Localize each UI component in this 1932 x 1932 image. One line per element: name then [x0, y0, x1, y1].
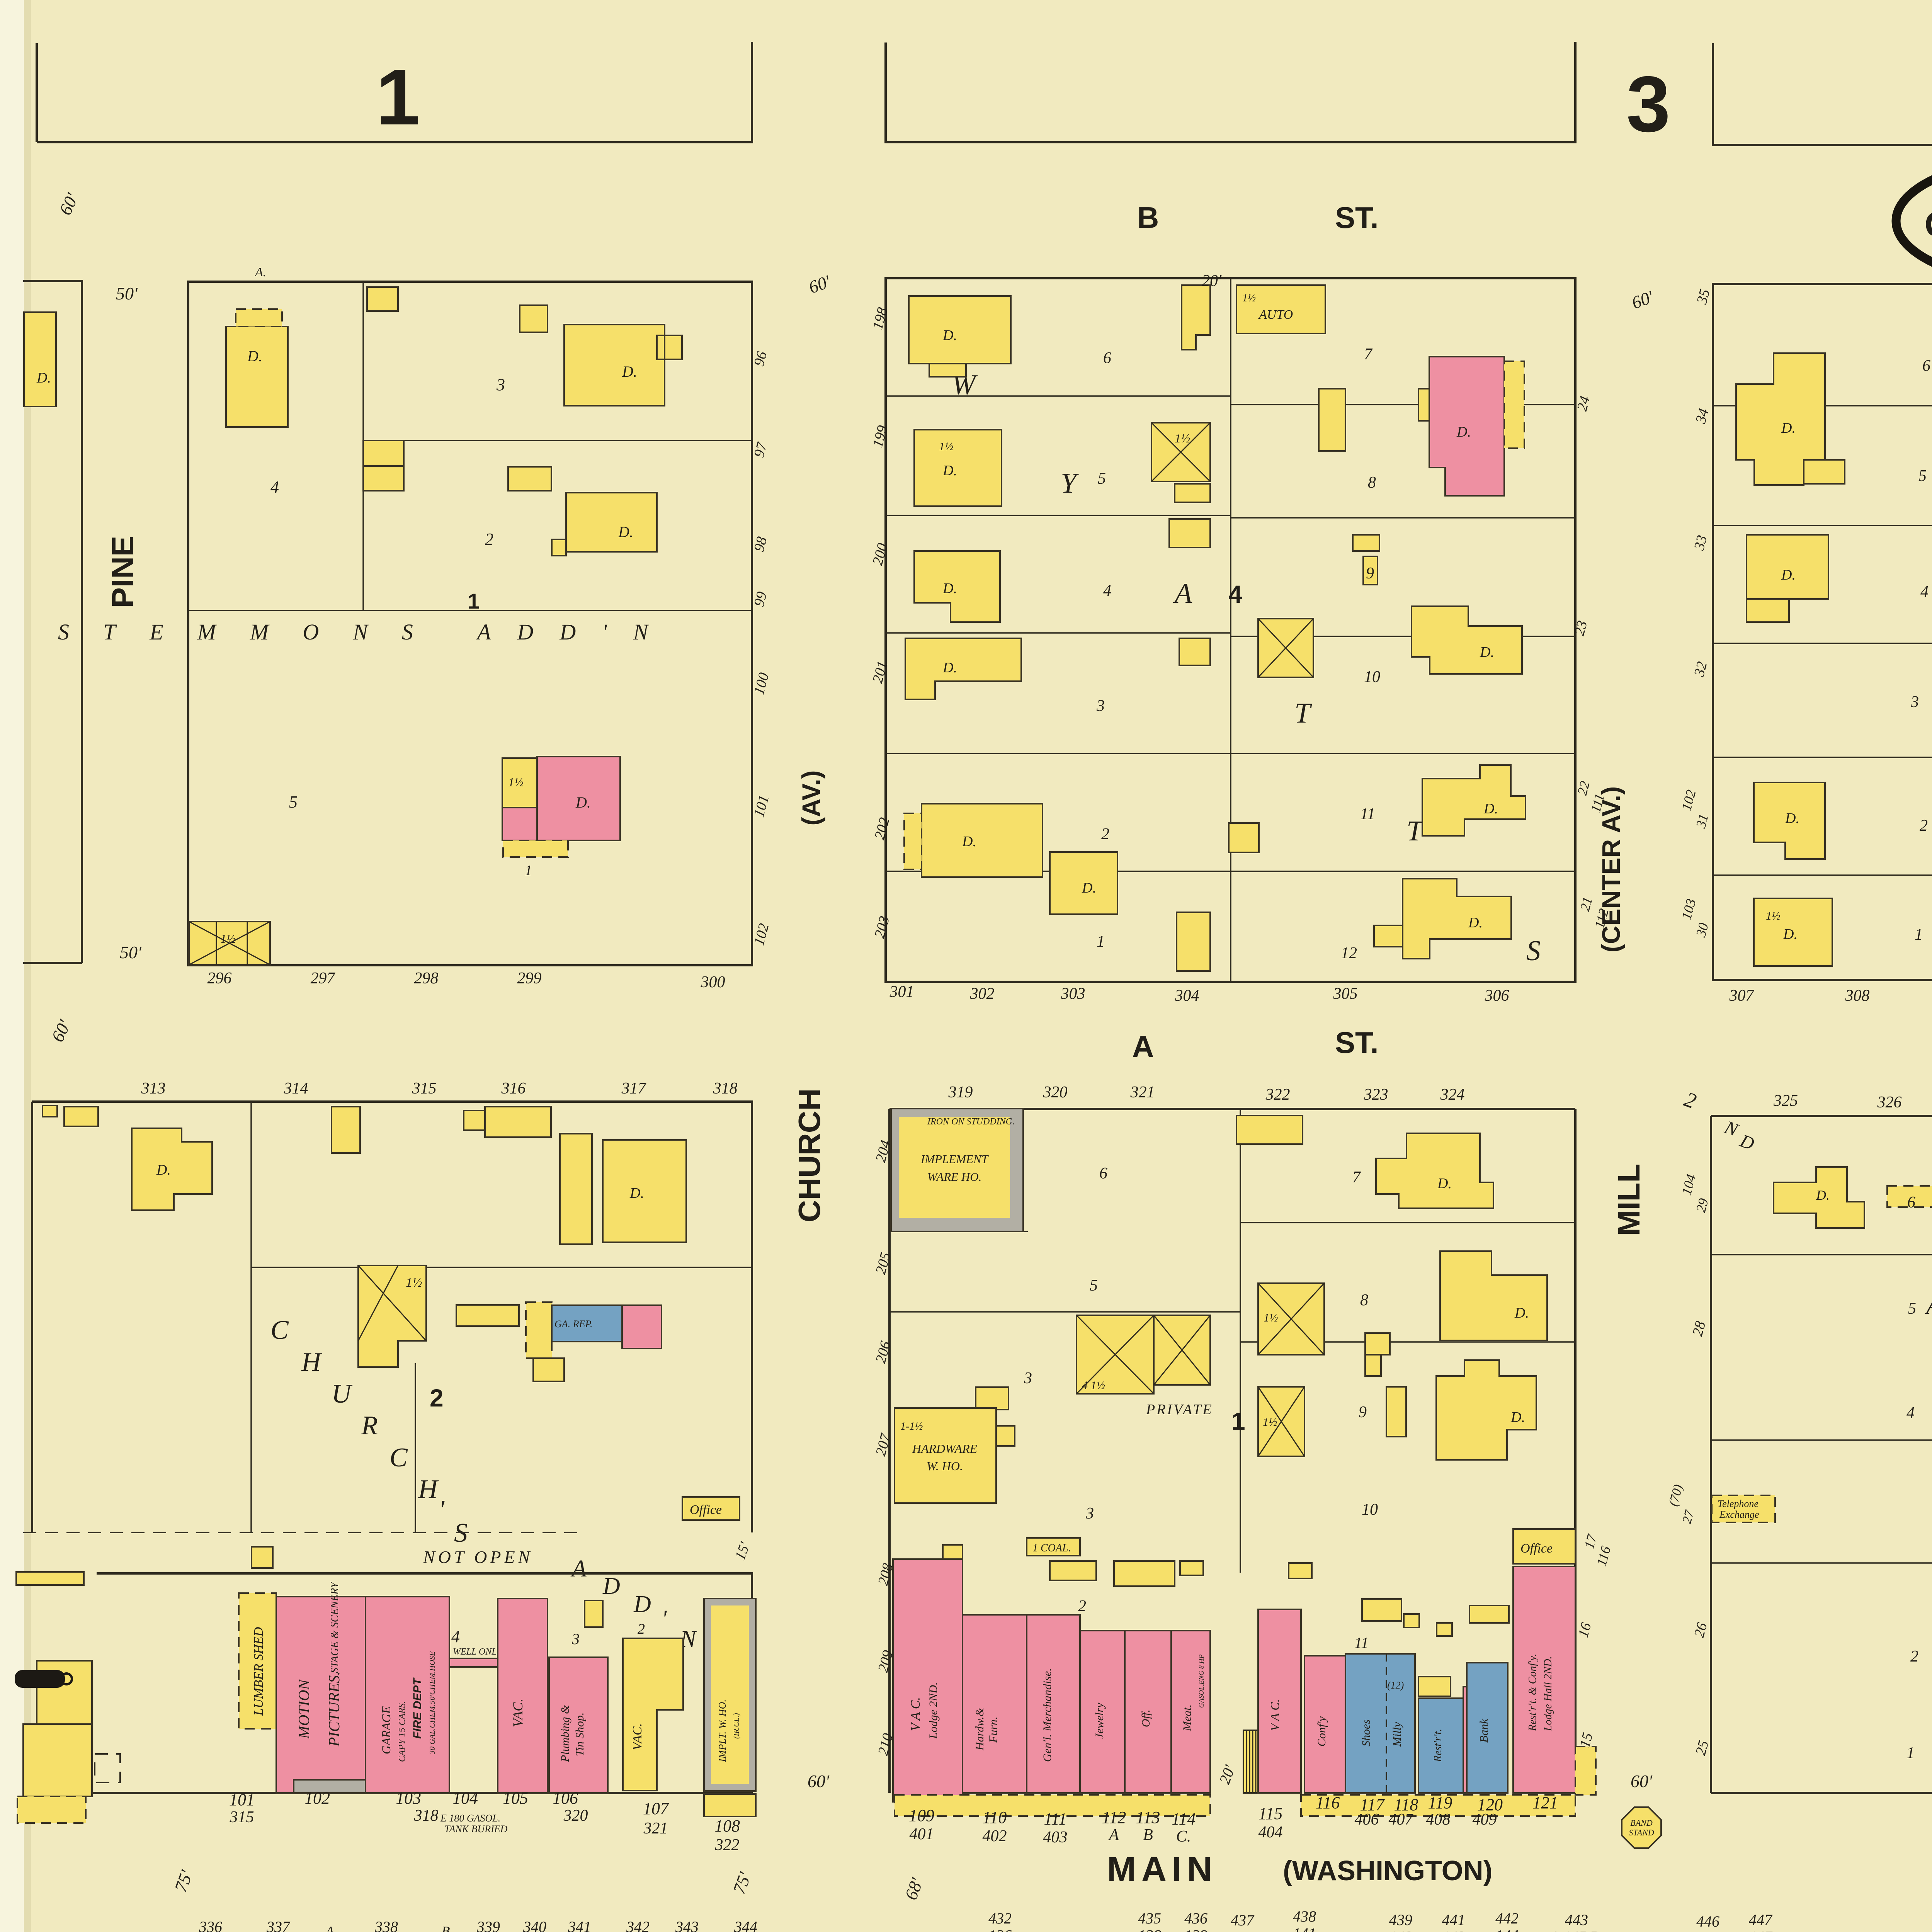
svg-text:FIRE DEPT: FIRE DEPT [411, 1677, 424, 1739]
svg-text:B: B [1137, 201, 1159, 235]
svg-text:1½: 1½ [1264, 1311, 1278, 1324]
svg-text:7: 7 [1352, 1168, 1361, 1186]
svg-text:317: 317 [621, 1080, 647, 1097]
svg-text:Conf'y: Conf'y [1315, 1716, 1328, 1747]
svg-text:5: 5 [1098, 470, 1106, 488]
svg-text:1½: 1½ [1766, 910, 1781, 922]
svg-text:1½: 1½ [1175, 431, 1190, 445]
svg-text:315: 315 [412, 1080, 437, 1097]
svg-text:105: 105 [503, 1789, 528, 1808]
svg-text:2: 2 [1920, 817, 1928, 835]
svg-text:1-1½: 1-1½ [900, 1420, 923, 1432]
svg-text:1½: 1½ [1242, 292, 1256, 304]
svg-text:50': 50' [120, 942, 142, 962]
svg-text:404: 404 [1259, 1823, 1283, 1841]
svg-text:AUTO: AUTO [1258, 308, 1293, 322]
svg-text:4: 4 [1920, 583, 1929, 601]
svg-text:Milly: Milly [1391, 1722, 1403, 1747]
svg-text:A: A [1173, 578, 1192, 609]
svg-text:Furn.: Furn. [987, 1717, 1000, 1743]
svg-text:D.: D. [1456, 424, 1471, 440]
svg-text:117: 117 [1360, 1795, 1385, 1814]
svg-text:Off.: Off. [1139, 1709, 1152, 1727]
svg-text:296: 296 [207, 969, 232, 987]
svg-text:CHURCH: CHURCH [792, 1088, 827, 1223]
svg-text:NOT OPEN: NOT OPEN [423, 1547, 533, 1567]
svg-text:GASOL.ENG 8 HP: GASOL.ENG 8 HP [1197, 1654, 1205, 1708]
svg-text:4: 4 [1228, 580, 1242, 608]
svg-text:336: 336 [199, 1918, 222, 1932]
svg-text:H: H [301, 1347, 322, 1377]
svg-text:2: 2 [485, 530, 493, 549]
svg-text:5: 5 [1918, 467, 1927, 485]
svg-text:318: 318 [414, 1807, 439, 1825]
svg-text:146: 146 [1696, 1930, 1719, 1932]
svg-text:2: 2 [1101, 825, 1109, 843]
svg-text:9: 9 [1359, 1403, 1367, 1421]
svg-text:111: 111 [1044, 1810, 1066, 1828]
svg-text:Plumbing &: Plumbing & [559, 1705, 571, 1762]
svg-text:VAC.: VAC. [510, 1699, 526, 1727]
svg-text:H: H [418, 1475, 439, 1504]
svg-text:112: 112 [1102, 1808, 1126, 1827]
svg-text:(WASHINGTON): (WASHINGTON) [1283, 1855, 1493, 1886]
svg-text:1: 1 [1906, 1744, 1915, 1762]
svg-text:6: 6 [1907, 1194, 1915, 1211]
svg-text:(IR.CL.): (IR.CL.) [732, 1713, 741, 1739]
svg-text:315: 315 [230, 1808, 254, 1826]
svg-text:Telephone: Telephone [1718, 1498, 1759, 1509]
svg-text:T: T [1294, 697, 1312, 729]
svg-text:': ' [439, 1495, 445, 1525]
svg-text:MILL: MILL [1612, 1164, 1646, 1236]
svg-text:1: 1 [1915, 926, 1923, 944]
svg-text:HARDWARE: HARDWARE [912, 1442, 978, 1456]
svg-text:STEMMONS: STEMMONS [58, 619, 447, 645]
svg-text:5: 5 [289, 793, 298, 811]
svg-text:435: 435 [1138, 1910, 1161, 1927]
svg-text:60': 60' [1631, 1771, 1653, 1791]
svg-text:408: 408 [1426, 1811, 1451, 1828]
svg-text:337: 337 [266, 1918, 291, 1932]
svg-text:Office: Office [690, 1503, 722, 1517]
svg-text:316: 316 [501, 1080, 526, 1097]
svg-text:Tin Shop.: Tin Shop. [573, 1713, 586, 1756]
svg-text:A.: A. [254, 265, 266, 279]
svg-text:R: R [361, 1411, 378, 1440]
svg-text:60': 60' [808, 1771, 830, 1791]
svg-text:': ' [662, 1606, 667, 1632]
svg-text:307: 307 [1729, 987, 1755, 1005]
svg-text:138: 138 [1138, 1927, 1161, 1932]
svg-text:B: B [1143, 1826, 1153, 1844]
svg-text:5: 5 [1090, 1277, 1098, 1294]
svg-text:403: 403 [1043, 1828, 1068, 1846]
svg-text:Lodge Hall 2ND.: Lodge Hall 2ND. [1542, 1656, 1554, 1731]
svg-text:4: 4 [451, 1627, 460, 1646]
svg-text:A: A [1108, 1826, 1119, 1844]
svg-text:6: 6 [1922, 357, 1930, 375]
svg-text:3: 3 [496, 375, 505, 394]
svg-text:4 1½: 4 1½ [1082, 1379, 1105, 1392]
svg-text:STAGE & SCENERY: STAGE & SCENERY [329, 1581, 341, 1673]
svg-text:7: 7 [1364, 345, 1373, 363]
svg-text:308: 308 [1845, 987, 1870, 1005]
svg-text:3: 3 [1085, 1505, 1094, 1522]
svg-text:2: 2 [430, 1384, 444, 1412]
svg-text:118: 118 [1394, 1795, 1418, 1814]
svg-text:C: C [389, 1443, 408, 1473]
svg-text:Rest'r't.: Rest'r't. [1432, 1729, 1444, 1762]
svg-text:D.: D. [942, 660, 957, 676]
svg-text:103: 103 [396, 1789, 421, 1808]
svg-text:D.: D. [1510, 1409, 1525, 1425]
svg-text:D.: D. [247, 347, 262, 365]
svg-text:1: 1 [1231, 1407, 1245, 1435]
svg-text:11: 11 [1354, 1634, 1369, 1651]
svg-text:GARAGE: GARAGE [379, 1706, 393, 1754]
svg-text:GOLDEN CITY: GOLDEN CITY [1925, 205, 1932, 244]
svg-text:432: 432 [988, 1910, 1012, 1927]
svg-text:BAND: BAND [1630, 1818, 1653, 1828]
svg-text:6: 6 [1103, 349, 1111, 367]
svg-text:2: 2 [638, 1621, 645, 1637]
svg-text:Exchange: Exchange [1719, 1509, 1759, 1520]
svg-text:D.: D. [1514, 1305, 1529, 1321]
svg-text:Shoes: Shoes [1360, 1719, 1372, 1747]
svg-text:442: 442 [1495, 1910, 1519, 1927]
svg-text:2: 2 [1910, 1648, 1918, 1665]
svg-text:9: 9 [1366, 565, 1374, 582]
svg-text:108: 108 [714, 1816, 740, 1835]
svg-text:Hardw.&: Hardw.& [973, 1707, 986, 1751]
svg-text:D.: D. [1437, 1175, 1452, 1192]
svg-text:ST.: ST. [1335, 201, 1379, 235]
svg-text:50': 50' [116, 284, 138, 303]
svg-text:A: A [570, 1556, 587, 1582]
svg-text:1: 1 [376, 53, 420, 141]
svg-text:342: 342 [626, 1918, 650, 1932]
svg-text:IRON ON STUDDING.: IRON ON STUDDING. [927, 1117, 1015, 1127]
svg-text:143: 143 [1442, 1928, 1465, 1932]
svg-text:MOTION: MOTION [295, 1679, 313, 1739]
svg-text:LUMBER SHED: LUMBER SHED [252, 1627, 266, 1716]
svg-text:ADD'N: ADD'N [476, 619, 674, 645]
svg-text:1½: 1½ [939, 440, 954, 453]
svg-text:338: 338 [374, 1918, 398, 1932]
svg-text:8: 8 [1368, 474, 1376, 492]
svg-text:D.: D. [962, 833, 976, 850]
svg-text:3: 3 [1096, 697, 1105, 715]
svg-text:A.: A. [325, 1923, 338, 1932]
svg-text:D.: D. [618, 523, 633, 541]
svg-text:320: 320 [563, 1807, 588, 1825]
svg-text:3: 3 [1024, 1369, 1032, 1387]
svg-text:6: 6 [1099, 1165, 1107, 1182]
svg-text:110: 110 [983, 1808, 1007, 1827]
svg-text:(12): (12) [1387, 1680, 1404, 1691]
svg-text:136: 136 [988, 1927, 1012, 1932]
svg-text:8: 8 [1360, 1291, 1368, 1309]
svg-text:147: 147 [1749, 1928, 1773, 1932]
svg-text:CAPY 15 CARS.: CAPY 15 CARS. [397, 1701, 407, 1762]
svg-text:PINE: PINE [105, 536, 140, 608]
svg-text:Office: Office [1520, 1541, 1553, 1556]
svg-text:106: 106 [553, 1789, 578, 1808]
svg-text:104: 104 [452, 1789, 478, 1808]
svg-text:11: 11 [1360, 805, 1375, 823]
svg-text:D.: D. [1082, 880, 1096, 896]
svg-text:10: 10 [1362, 1501, 1378, 1519]
svg-text:D: D [602, 1573, 620, 1599]
svg-text:321: 321 [1130, 1083, 1155, 1101]
svg-text:1½: 1½ [220, 932, 236, 946]
svg-text:313: 313 [141, 1080, 166, 1097]
svg-text:D.: D. [1480, 644, 1494, 660]
svg-text:322: 322 [715, 1836, 740, 1854]
svg-text:339: 339 [476, 1918, 500, 1932]
svg-text:B.: B. [442, 1923, 454, 1932]
svg-text:341: 341 [568, 1918, 591, 1932]
svg-text:402: 402 [983, 1827, 1007, 1845]
svg-text:140: 140 [1231, 1929, 1254, 1932]
svg-text:ST.: ST. [1335, 1026, 1379, 1060]
svg-text:MAIN: MAIN [1107, 1850, 1218, 1889]
svg-text:Meat.: Meat. [1181, 1704, 1194, 1731]
svg-text:WELL ONLY: WELL ONLY [453, 1647, 503, 1657]
svg-text:A.145 B.: A.145 B. [1549, 1928, 1604, 1932]
svg-text:1½: 1½ [406, 1276, 422, 1290]
svg-text:443: 443 [1565, 1911, 1588, 1929]
svg-text:3: 3 [571, 1630, 580, 1648]
svg-text:3: 3 [1910, 693, 1919, 711]
svg-text:121: 121 [1532, 1793, 1558, 1812]
svg-text:320: 320 [1043, 1083, 1068, 1101]
svg-text:4: 4 [270, 478, 279, 497]
svg-text:Y: Y [1061, 468, 1079, 499]
svg-text:D.: D. [156, 1162, 171, 1178]
svg-text:PICTURES.: PICTURES. [325, 1672, 343, 1747]
svg-text:298: 298 [414, 969, 439, 987]
svg-text:437: 437 [1231, 1912, 1255, 1929]
svg-text:V A C.: V A C. [908, 1697, 923, 1731]
svg-text:1: 1 [1097, 933, 1105, 951]
svg-text:318: 318 [713, 1080, 738, 1097]
svg-text:326: 326 [1877, 1094, 1902, 1111]
svg-text:20': 20' [1202, 272, 1222, 290]
svg-text:GA. REP.: GA. REP. [554, 1318, 592, 1330]
svg-text:Jewelry: Jewelry [1093, 1702, 1106, 1739]
svg-text:10: 10 [1364, 668, 1380, 686]
svg-text:119: 119 [1428, 1793, 1452, 1812]
svg-text:12: 12 [1341, 944, 1357, 962]
svg-text:299: 299 [517, 969, 542, 987]
svg-text:101: 101 [229, 1790, 255, 1809]
svg-text:Rest'r't. & Conf'y.: Rest'r't. & Conf'y. [1527, 1654, 1539, 1731]
svg-text:139: 139 [1184, 1927, 1207, 1932]
svg-text:113: 113 [1136, 1808, 1160, 1827]
svg-text:Lodge 2ND.: Lodge 2ND. [927, 1682, 940, 1739]
svg-text:D.: D. [1781, 420, 1796, 436]
svg-text:102: 102 [304, 1789, 330, 1808]
svg-text:303: 303 [1061, 985, 1085, 1003]
svg-text:A: A [1132, 1029, 1154, 1063]
svg-text:D.: D. [622, 363, 637, 380]
svg-text:U: U [332, 1379, 353, 1409]
svg-text:D.: D. [1483, 801, 1498, 817]
svg-text:D.: D. [36, 370, 51, 386]
svg-text:447: 447 [1749, 1911, 1773, 1929]
svg-text:301: 301 [889, 983, 914, 1001]
svg-text:IMPLEMENT: IMPLEMENT [920, 1152, 989, 1166]
svg-text:D.: D. [942, 327, 957, 344]
svg-text:306: 306 [1485, 987, 1509, 1005]
svg-text:300: 300 [701, 973, 725, 991]
svg-text:S: S [1526, 935, 1541, 967]
svg-text:VAC.: VAC. [630, 1723, 645, 1750]
svg-text:297: 297 [311, 969, 336, 987]
svg-text:324: 324 [1440, 1086, 1465, 1104]
svg-text:120: 120 [1477, 1795, 1503, 1814]
svg-text:WARE HO.: WARE HO. [927, 1170, 982, 1184]
svg-text:305: 305 [1333, 985, 1358, 1003]
svg-text:321: 321 [643, 1820, 668, 1837]
svg-text:1: 1 [525, 862, 532, 879]
svg-text:436: 436 [1184, 1910, 1207, 1927]
svg-text:C.: C. [1176, 1828, 1191, 1845]
svg-text:Gen'l. Merchandise.: Gen'l. Merchandise. [1041, 1668, 1054, 1762]
svg-text:302: 302 [970, 985, 995, 1003]
svg-text:115: 115 [1259, 1804, 1283, 1823]
svg-text:142: 142 [1389, 1928, 1412, 1932]
svg-text:TANK BURIED: TANK BURIED [444, 1823, 508, 1835]
svg-text:IMPLT. W. HO.: IMPLT. W. HO. [717, 1699, 728, 1762]
svg-text:30 GAL.CHEM.50'CHEM.HOSE: 30 GAL.CHEM.50'CHEM.HOSE [428, 1651, 437, 1755]
svg-text:D.: D. [1785, 810, 1799, 827]
svg-text:343: 343 [675, 1918, 699, 1932]
svg-text:4: 4 [1103, 582, 1111, 600]
svg-text:D.: D. [1781, 567, 1796, 583]
svg-text:401: 401 [910, 1825, 934, 1843]
svg-text:4: 4 [1906, 1404, 1915, 1422]
svg-text:V A C.: V A C. [1268, 1699, 1282, 1731]
svg-text:W. HO.: W. HO. [927, 1459, 963, 1473]
svg-text:STAND: STAND [1629, 1828, 1654, 1837]
svg-text:5: 5 [1908, 1300, 1916, 1318]
svg-text:107: 107 [643, 1799, 669, 1818]
svg-text:D.: D. [942, 463, 957, 479]
svg-text:D.: D. [1783, 926, 1798, 942]
svg-text:114: 114 [1172, 1810, 1196, 1828]
svg-text:322: 322 [1265, 1086, 1290, 1104]
svg-text:D.: D. [1816, 1187, 1830, 1203]
svg-text:1½: 1½ [508, 775, 524, 789]
svg-text:439: 439 [1389, 1911, 1412, 1929]
svg-text:1½: 1½ [1263, 1416, 1277, 1429]
svg-text:D.: D. [942, 580, 957, 597]
svg-text:137: 137 [1033, 1930, 1057, 1932]
svg-text:E 180 GASOL.: E 180 GASOL. [440, 1813, 500, 1824]
svg-text:D.: D. [1468, 915, 1483, 931]
svg-text:(AV.): (AV.) [797, 770, 825, 825]
svg-text:325: 325 [1773, 1092, 1798, 1110]
svg-text:PRIVATE: PRIVATE [1146, 1401, 1213, 1418]
svg-text:D.: D. [629, 1185, 644, 1201]
svg-text:D.: D. [575, 794, 591, 811]
svg-text:116: 116 [1316, 1793, 1340, 1812]
svg-text:3: 3 [1626, 60, 1670, 148]
svg-text:D: D [633, 1591, 651, 1617]
svg-text:441: 441 [1442, 1911, 1465, 1929]
svg-text:2: 2 [1078, 1597, 1086, 1615]
svg-text:319: 319 [948, 1083, 973, 1101]
svg-text:304: 304 [1175, 987, 1199, 1005]
svg-text:C: C [270, 1315, 289, 1345]
svg-text:323: 323 [1364, 1086, 1388, 1104]
svg-text:438: 438 [1293, 1908, 1316, 1925]
svg-text:314: 314 [284, 1080, 308, 1097]
svg-text:109: 109 [909, 1806, 934, 1825]
svg-text:1 COAL.: 1 COAL. [1032, 1542, 1071, 1554]
svg-text:446: 446 [1696, 1913, 1719, 1930]
svg-text:141: 141 [1293, 1925, 1316, 1932]
svg-text:1: 1 [468, 589, 480, 613]
svg-text:340: 340 [523, 1918, 546, 1932]
svg-text:144: 144 [1495, 1927, 1519, 1932]
svg-text:344: 344 [734, 1918, 757, 1932]
svg-text:Bank: Bank [1478, 1719, 1490, 1743]
